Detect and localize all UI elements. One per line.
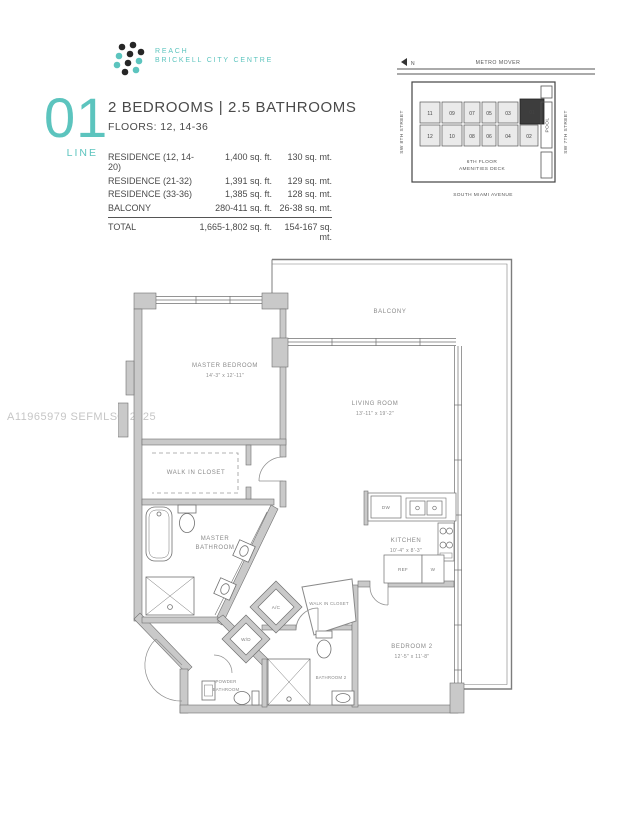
spec-sqmt: 129 sq. mt.: [272, 176, 332, 186]
toilet-tank: [316, 631, 332, 638]
street-left-label: SW 8TH STREET: [399, 110, 405, 154]
windows: [154, 296, 462, 684]
balcony-outline: [272, 260, 512, 690]
toilet-bowl: [317, 640, 331, 658]
powder-bathroom-label: BATHROOM: [213, 687, 240, 692]
pool-label: POOL: [545, 118, 551, 133]
walk-in-closet2-label: WALK IN CLOSET: [309, 601, 349, 606]
toilet-bowl: [234, 692, 250, 705]
toilet-tank: [252, 691, 259, 705]
wd-label: W/D: [241, 637, 251, 642]
bathroom2-fixtures: [268, 631, 354, 705]
amenities-label: AMENITIES DECK: [459, 166, 506, 172]
metro-mover-label: METRO MOVER: [476, 60, 521, 66]
unit-label: 02: [526, 134, 532, 140]
toilet-bowl: [180, 514, 195, 533]
logo-dots-icon: [112, 40, 148, 76]
spec-label: RESIDENCE (12, 14-20): [108, 152, 196, 172]
walk-in-closet1-label: WALK IN CLOSET: [167, 470, 226, 476]
bedroom2-label: BEDROOM 2: [391, 644, 432, 650]
north-arrow-icon: N: [401, 58, 415, 67]
logo-text: REACH BRICKELL CITY CENTRE: [155, 47, 273, 76]
line-number: 01: [44, 90, 100, 146]
unit-label-highlighted: 01: [529, 110, 535, 116]
unit-label: 06: [486, 134, 492, 140]
unit-label: 11: [427, 111, 432, 117]
spec-sqft: 1,391 sq. ft.: [196, 176, 272, 186]
spec-row: BALCONY 280-411 sq. ft. 26-38 sq. mt.: [108, 203, 332, 213]
spec-row: RESIDENCE (12, 14-20) 1,400 sq. ft. 130 …: [108, 152, 332, 172]
spec-sqmt: 130 sq. mt.: [272, 152, 332, 172]
logo-line1: REACH: [155, 47, 273, 56]
spec-label: RESIDENCE (33-36): [108, 189, 196, 199]
spec-row: RESIDENCE (33-36) 1,385 sq. ft. 128 sq. …: [108, 189, 332, 199]
living-room-dim: 13'-11" x 19'-2": [356, 411, 394, 417]
spec-table: RESIDENCE (12, 14-20) 1,400 sq. ft. 130 …: [108, 152, 332, 245]
spec-label: RESIDENCE (21-32): [108, 176, 196, 186]
spec-sqft: 1,385 sq. ft.: [196, 189, 272, 199]
spec-sqmt: 128 sq. mt.: [272, 189, 332, 199]
balcony-label: BALCONY: [374, 309, 407, 315]
living-room-label: LIVING ROOM: [352, 401, 399, 407]
toilet-tank: [178, 505, 196, 513]
unit-label: 05: [486, 111, 492, 117]
bathroom2-label: BATHROOM 2: [316, 675, 347, 680]
street-bottom-label: SOUTH MIAMI AVENUE: [453, 192, 513, 198]
kitchen-dim: 10'-4" x 8'-3": [390, 548, 422, 554]
master-bath-fixtures: [146, 505, 267, 615]
spec-sqmt: 26-38 sq. mt.: [272, 203, 332, 213]
floor-plan: BALCONY MASTER BEDROOM 14'-3" x 12'-11" …: [118, 255, 520, 733]
master-bedroom-label: MASTER BEDROOM: [192, 363, 258, 369]
spec-label: TOTAL: [108, 222, 196, 242]
w-label: W: [431, 567, 436, 572]
key-plan: N METRO MOVER SW 8TH STREET SW 7TH STREE…: [393, 50, 603, 210]
unit-label: 03: [505, 111, 511, 117]
powder-fixtures: [202, 681, 259, 705]
line-label: LINE: [46, 147, 98, 159]
master-bedroom-dim: 14'-3" x 12'-11": [206, 373, 244, 379]
spec-sqmt: 154-167 sq. mt.: [272, 222, 332, 242]
unit-label: 12: [427, 134, 433, 140]
unit-label: 09: [449, 111, 455, 117]
ref-label: REF: [398, 567, 408, 572]
master-bathroom-label: BATHROOM: [195, 545, 234, 551]
kitchen-label: KITCHEN: [391, 538, 422, 544]
master-bathroom-label: MASTER: [201, 536, 230, 542]
plan-title: 2 BEDROOMS | 2.5 BATHROOMS: [108, 99, 356, 116]
unit-label: 07: [469, 111, 475, 117]
dw-label: DW: [382, 505, 391, 510]
plan-floors: FLOORS: 12, 14-36: [108, 121, 208, 133]
floorplan-sheet: REACH BRICKELL CITY CENTRE 01 LINE 2 BED…: [0, 0, 638, 838]
unit-label: 08: [469, 134, 475, 140]
unit-label: 10: [449, 134, 455, 140]
amenities-label: 6TH FLOOR: [467, 159, 498, 165]
spec-sqft: 1,665-1,802 sq. ft.: [196, 222, 272, 242]
brand-logo: REACH BRICKELL CITY CENTRE: [112, 40, 273, 76]
spec-total-row: TOTAL 1,665-1,802 sq. ft. 154-167 sq. mt…: [108, 217, 332, 242]
powder-bathroom-label: POWDER: [216, 679, 237, 684]
logo-line2: BRICKELL CITY CENTRE: [155, 56, 273, 65]
north-label: N: [411, 61, 415, 67]
street-right-label: SW 7TH STREET: [563, 110, 569, 154]
bedroom2-dim: 12'-5" x 11'-8": [395, 654, 430, 660]
spec-row: RESIDENCE (21-32) 1,391 sq. ft. 129 sq. …: [108, 176, 332, 186]
unit-label: 04: [505, 134, 511, 140]
spec-label: BALCONY: [108, 203, 196, 213]
ac-label: A/C: [272, 605, 281, 610]
spec-sqft: 280-411 sq. ft.: [196, 203, 272, 213]
spec-sqft: 1,400 sq. ft.: [196, 152, 272, 172]
